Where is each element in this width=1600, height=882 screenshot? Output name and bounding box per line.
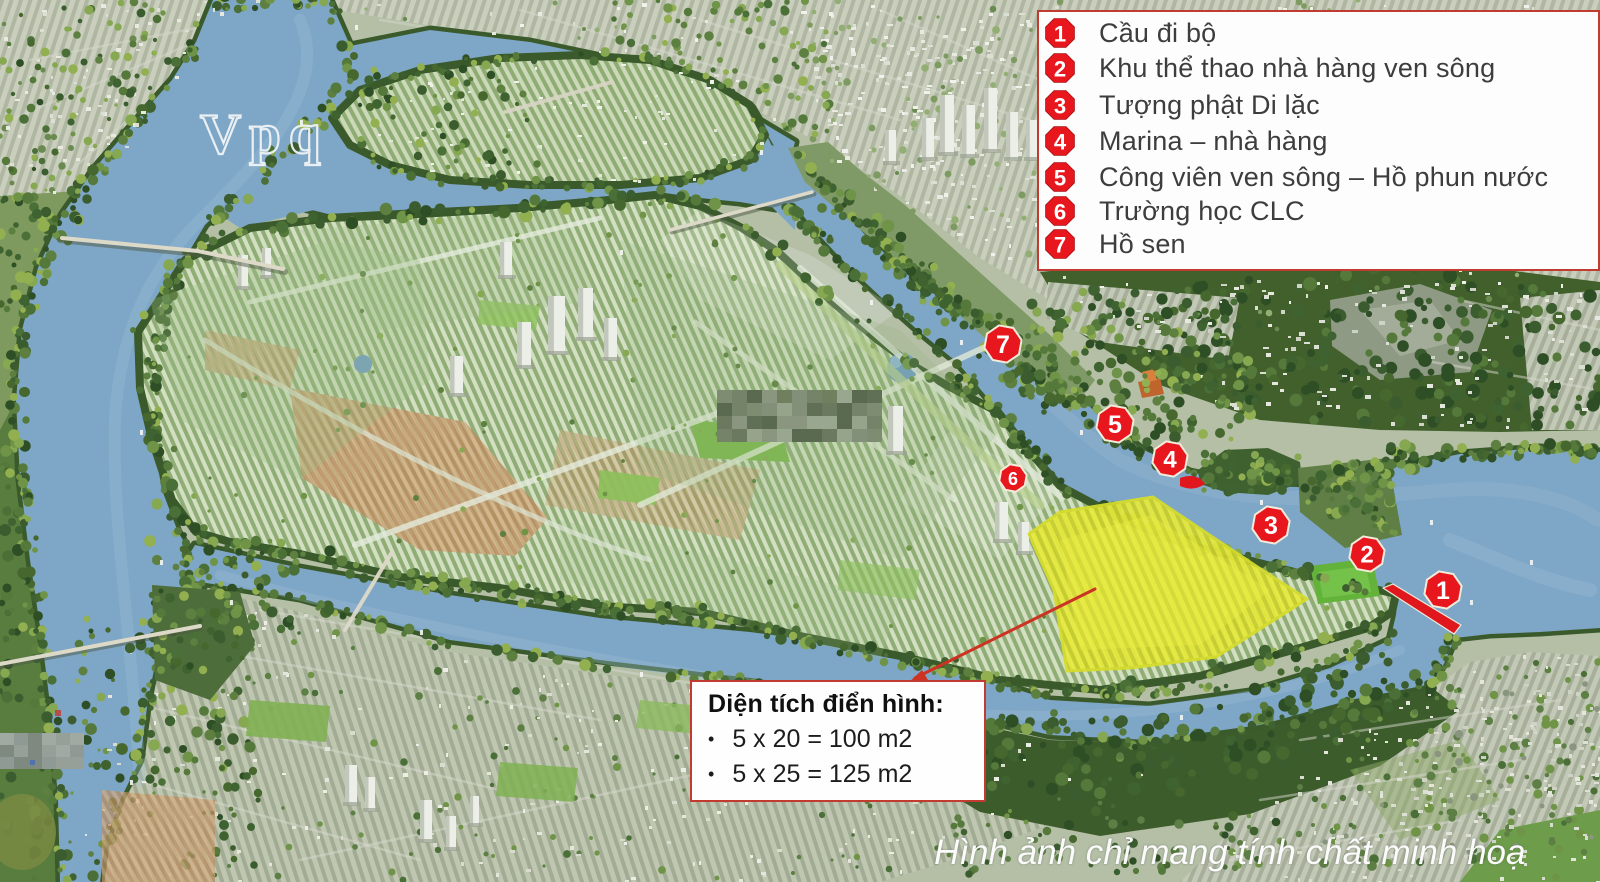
svg-text:3: 3 bbox=[1264, 512, 1278, 540]
svg-text:4: 4 bbox=[1163, 447, 1177, 474]
svg-text:6: 6 bbox=[1008, 469, 1018, 489]
svg-text:2: 2 bbox=[1360, 542, 1373, 569]
svg-text:7: 7 bbox=[1054, 232, 1066, 257]
svg-text:6: 6 bbox=[1054, 199, 1066, 224]
svg-text:5: 5 bbox=[1054, 165, 1066, 190]
svg-text:7: 7 bbox=[996, 331, 1010, 359]
svg-text:5: 5 bbox=[1108, 411, 1122, 439]
svg-text:2: 2 bbox=[1054, 56, 1066, 81]
svg-text:1: 1 bbox=[1054, 21, 1066, 46]
svg-text:3: 3 bbox=[1054, 93, 1066, 118]
svg-text:4: 4 bbox=[1054, 129, 1067, 154]
svg-text:1: 1 bbox=[1436, 577, 1450, 605]
